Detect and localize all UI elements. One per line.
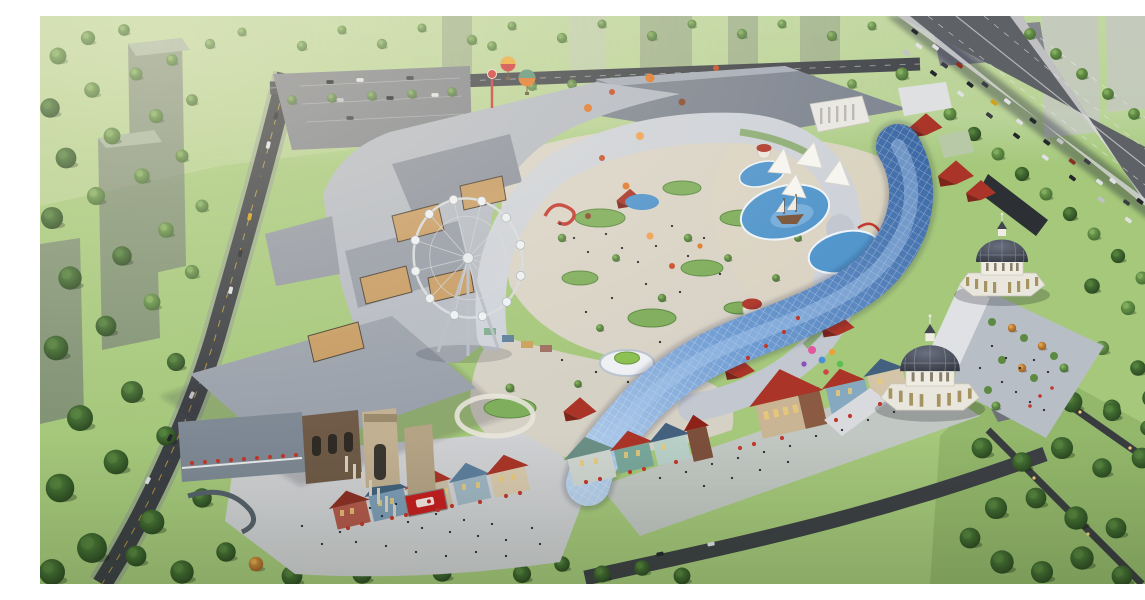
light-overlays	[40, 16, 1145, 584]
bottom-vignette	[40, 436, 1145, 584]
aerial-render: Aerial architectural rendering of a larg…	[40, 16, 1145, 584]
render-canvas	[40, 16, 1145, 584]
